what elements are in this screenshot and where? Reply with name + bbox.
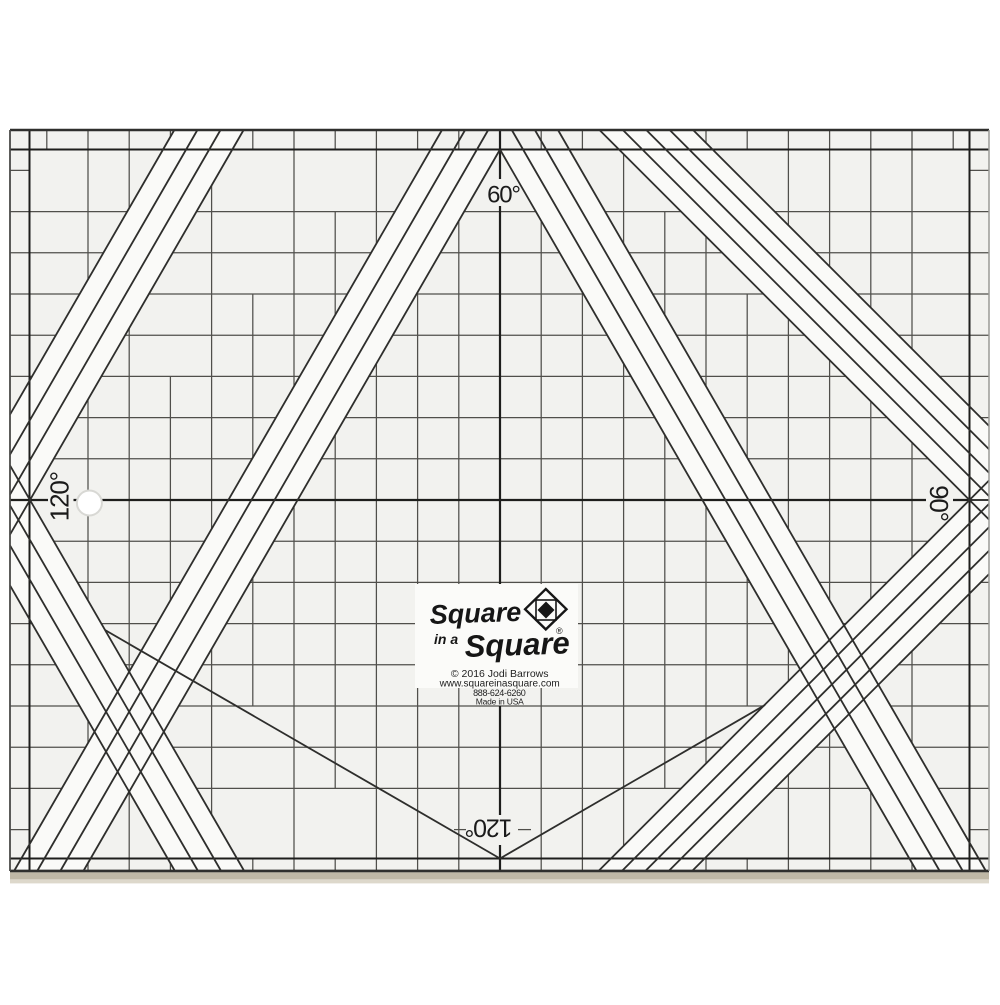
svg-text:®: ® [556,626,563,636]
svg-text:120°: 120° [465,814,512,842]
svg-text:60°: 60° [487,181,520,208]
svg-text:90°: 90° [924,485,954,521]
svg-text:120°: 120° [45,472,75,521]
svg-text:Square: Square [464,625,570,664]
svg-text:Square: Square [429,597,522,630]
svg-text:Made in USA: Made in USA [476,696,524,706]
svg-text:in a: in a [434,631,458,647]
